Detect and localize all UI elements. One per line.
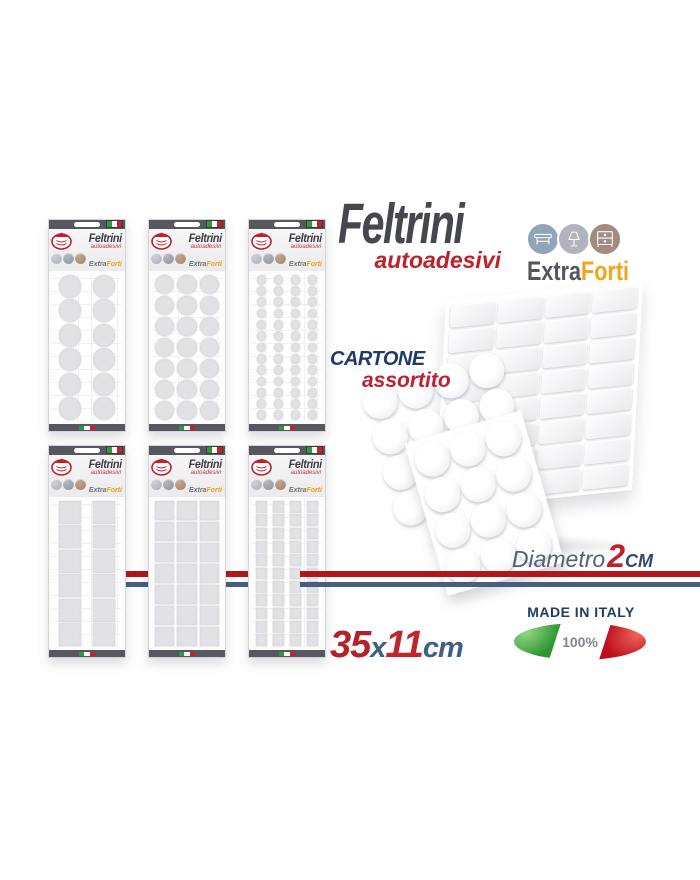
product-title: Feltrini — [338, 196, 463, 253]
square-felt-pad — [496, 321, 542, 348]
square-felt-pad — [541, 367, 587, 394]
brand-logo-badge — [151, 231, 172, 255]
package-subtitle: autoadesivi — [191, 470, 221, 476]
felt-pad — [273, 594, 285, 606]
felt-pad — [274, 275, 284, 285]
felt-pad — [290, 541, 302, 553]
sample-pad — [263, 253, 274, 264]
diameter-label: Diametro 2 CM — [512, 540, 653, 573]
round-felt-pad — [421, 473, 464, 516]
felt-pad — [308, 343, 318, 353]
italy-flag-badge — [307, 221, 322, 227]
square-felt-pad — [585, 412, 631, 439]
felt-pad — [290, 634, 302, 646]
felt-pad — [93, 299, 116, 322]
flag-stripe — [117, 447, 122, 453]
package-title: Feltrini — [289, 231, 322, 245]
felt-pad — [308, 388, 318, 398]
felt-pad — [257, 377, 267, 387]
felt-pad — [274, 343, 284, 353]
sample-pad — [175, 253, 186, 264]
package-header: FeltriniautoadesiviExtraForti — [149, 455, 225, 497]
package-footer-bar — [49, 424, 125, 431]
felt-pad — [273, 608, 285, 620]
felt-pad — [308, 331, 318, 341]
felt-pad — [291, 343, 301, 353]
round-felt-pad — [369, 415, 412, 458]
felt-pad — [93, 397, 116, 420]
felt-pad — [274, 410, 284, 420]
felt-pad — [256, 501, 268, 513]
felt-pad — [256, 554, 268, 566]
felt-pad — [290, 621, 302, 633]
package-footer-bar — [249, 424, 325, 431]
flag-stripe — [90, 426, 95, 430]
sample-pads — [151, 479, 186, 490]
felt-pad — [200, 627, 219, 646]
hang-hole — [174, 448, 200, 453]
square-felt-pad — [538, 417, 584, 444]
felt-pad — [291, 320, 301, 330]
package-header-bar — [149, 446, 225, 455]
felt-pad — [290, 594, 302, 606]
felt-pad — [257, 275, 267, 285]
felt-pad — [257, 343, 267, 353]
square-felt-pad — [589, 337, 635, 364]
package-title: Feltrini — [289, 457, 322, 471]
square-felt-pad — [537, 443, 583, 470]
forti-text: Forti — [206, 487, 222, 494]
square-felt-pad — [542, 342, 588, 369]
felt-pad — [291, 377, 301, 387]
sample-pad — [263, 479, 274, 490]
sample-pad — [51, 253, 62, 264]
brand-logo-badge — [151, 457, 172, 481]
sample-pad — [51, 479, 62, 490]
felt-pad — [155, 522, 174, 541]
felt-pad — [257, 399, 267, 409]
felt-pad — [59, 299, 82, 322]
sample-pads — [251, 479, 286, 490]
felt-pad — [93, 623, 116, 646]
extra-text: Extra — [527, 256, 581, 286]
hang-hole — [74, 448, 100, 453]
felt-pad — [308, 377, 318, 387]
sample-pad — [163, 479, 174, 490]
percent-text: 100% — [562, 634, 598, 650]
felt-pad — [291, 286, 301, 296]
felt-pad — [273, 514, 285, 526]
felt-pad — [59, 373, 82, 396]
flag-stripe — [317, 221, 322, 227]
hang-hole — [74, 222, 100, 227]
sample-pad — [175, 479, 186, 490]
package-extraforti: ExtraForti — [89, 261, 122, 268]
package-footer-bar — [149, 650, 225, 657]
cartone-assortito-label: CARTONE assortito — [330, 348, 451, 393]
square-felt-pad — [545, 291, 591, 318]
felt-pad — [257, 388, 267, 398]
felt-pads-package: FeltriniautoadesiviExtraForti — [48, 219, 126, 432]
felt-pad — [200, 296, 219, 315]
felt-pad — [307, 514, 319, 526]
package-subtitle: autoadesivi — [191, 244, 221, 250]
italy-flag-badge — [179, 426, 195, 430]
felt-pads-package: FeltriniautoadesiviExtraForti — [148, 219, 226, 432]
package-title: Feltrini — [189, 231, 222, 245]
pads-grid — [153, 500, 221, 647]
square-felt-pad — [543, 316, 589, 343]
felt-pad — [155, 401, 174, 420]
round-felt-pad — [411, 438, 454, 481]
felt-pad — [290, 528, 302, 540]
italy-flag-badge — [107, 447, 122, 453]
felt-pad — [93, 501, 116, 524]
stripe-blue-front — [300, 582, 700, 587]
package-extraforti: ExtraForti — [289, 261, 322, 268]
package-header: FeltriniautoadesiviExtraForti — [49, 455, 125, 497]
felt-pads-package: FeltriniautoadesiviExtraForti — [48, 445, 126, 658]
sample-pad — [251, 479, 262, 490]
extra-text: Extra — [289, 261, 307, 268]
felt-pad — [177, 275, 196, 294]
felt-pad — [200, 585, 219, 604]
felt-pad — [256, 528, 268, 540]
sample-pad — [275, 253, 286, 264]
cartone-text: CARTONE — [330, 348, 451, 371]
felt-pad — [274, 365, 284, 375]
felt-pad — [308, 399, 318, 409]
felt-pad — [200, 359, 219, 378]
felt-pad — [59, 574, 82, 597]
felt-pad — [273, 568, 285, 580]
sample-pad — [151, 479, 162, 490]
felt-pad — [177, 543, 196, 562]
italy-flag-badge — [107, 221, 122, 227]
package-header-bar — [249, 220, 325, 229]
hang-hole — [174, 222, 200, 227]
pads-grid — [53, 500, 121, 647]
felt-pad — [200, 501, 219, 520]
square-felt-pad — [450, 301, 496, 328]
felt-pad — [177, 564, 196, 583]
package-footer-bar — [149, 424, 225, 431]
sample-pad — [63, 479, 74, 490]
package-title: Feltrini — [189, 457, 222, 471]
felt-pad — [257, 410, 267, 420]
flag-red — [599, 623, 646, 660]
felt-pad — [273, 541, 285, 553]
package-title: Feltrini — [89, 457, 122, 471]
felt-pad — [177, 501, 196, 520]
package-header-bar — [249, 446, 325, 455]
extra-text: Extra — [289, 487, 307, 494]
brand-logo-badge — [251, 231, 272, 255]
felt-pad — [273, 581, 285, 593]
sample-pads — [51, 253, 86, 264]
italy-flag-badge — [307, 447, 322, 453]
felt-pad — [59, 599, 82, 622]
flag-green — [514, 623, 561, 660]
felt-pad — [177, 380, 196, 399]
felt-pad — [291, 275, 301, 285]
brand-logo-badge — [51, 457, 72, 481]
felt-pad — [274, 388, 284, 398]
sample-pad — [63, 253, 74, 264]
sample-pad — [75, 479, 86, 490]
felt-pad — [177, 627, 196, 646]
felt-pad — [155, 627, 174, 646]
felt-pad — [59, 550, 82, 573]
square-felt-pad — [592, 286, 638, 313]
felt-pad — [155, 564, 174, 583]
felt-pad — [291, 309, 301, 319]
felt-pad — [308, 309, 318, 319]
felt-pad — [177, 401, 196, 420]
package-extraforti: ExtraForti — [189, 487, 222, 494]
flag-white: 100% — [562, 623, 598, 660]
package-subtitle: autoadesivi — [291, 244, 321, 250]
felt-pad — [291, 297, 301, 307]
felt-pad — [308, 297, 318, 307]
felt-pad — [93, 550, 116, 573]
package-extraforti: ExtraForti — [189, 261, 222, 268]
extra-text: Extra — [89, 261, 107, 268]
package-subtitle: autoadesivi — [91, 244, 121, 250]
felt-pad — [308, 275, 318, 285]
square-felt-pad — [591, 311, 637, 338]
round-felt-pad — [482, 417, 525, 460]
package-subtitle: autoadesivi — [291, 470, 321, 476]
felt-pad — [257, 309, 267, 319]
felt-pad — [59, 397, 82, 420]
felt-pad — [291, 388, 301, 398]
package-subtitle: autoadesivi — [91, 470, 121, 476]
category-icons — [529, 222, 622, 256]
headline: Feltrini autoadesivi — [338, 196, 512, 274]
felt-pad — [290, 501, 302, 513]
package-extraforti: ExtraForti — [89, 487, 122, 494]
italy-flag-badge — [179, 652, 195, 656]
felt-pad — [200, 317, 219, 336]
felt-pad — [93, 599, 116, 622]
italy-flag-ellipse: 100% — [514, 623, 646, 660]
brand-logo-badge — [51, 231, 72, 255]
sample-pad — [151, 253, 162, 264]
felt-pad — [273, 501, 285, 513]
felt-pad — [291, 410, 301, 420]
felt-pad — [257, 286, 267, 296]
felt-pad — [200, 543, 219, 562]
package-header: FeltriniautoadesiviExtraForti — [249, 229, 325, 271]
felt-pad — [155, 380, 174, 399]
felt-pad — [274, 354, 284, 364]
felt-pad — [93, 525, 116, 548]
felt-pad — [307, 621, 319, 633]
flag-stripe — [117, 221, 122, 227]
assortito-text: assortito — [362, 369, 451, 393]
square-felt-pad — [587, 387, 633, 414]
felt-pad — [200, 275, 219, 294]
forti-text: Forti — [581, 256, 629, 286]
felt-pad — [93, 348, 116, 371]
felt-pad — [256, 621, 268, 633]
pads-grid — [253, 274, 321, 421]
flag-stripe — [290, 652, 295, 656]
square-felt-pad — [448, 326, 494, 353]
felt-pad — [177, 606, 196, 625]
made-in-italy-block: MADE IN ITALY 100% — [514, 604, 648, 660]
flag-stripe — [90, 652, 95, 656]
felt-pad — [256, 608, 268, 620]
flag-stripe — [190, 652, 195, 656]
felt-pad — [291, 331, 301, 341]
package-header: FeltriniautoadesiviExtraForti — [249, 455, 325, 497]
dimension-width: 35 — [330, 626, 370, 664]
table-icon — [526, 222, 560, 256]
felt-pad — [274, 399, 284, 409]
felt-pad — [155, 317, 174, 336]
italy-flag-badge — [279, 652, 295, 656]
package-header-bar — [49, 220, 125, 229]
felt-pad — [256, 541, 268, 553]
round-felt-pad — [441, 544, 484, 587]
felt-pad — [274, 286, 284, 296]
felt-pad — [155, 543, 174, 562]
felt-pad — [307, 608, 319, 620]
felt-pad — [307, 541, 319, 553]
italy-flag-badge — [207, 221, 222, 227]
felt-pad — [155, 275, 174, 294]
square-felt-pad — [588, 362, 634, 389]
package-footer-bar — [249, 650, 325, 657]
flag-stripe — [290, 426, 295, 430]
round-felt-pad — [492, 453, 535, 496]
felt-pad — [257, 365, 267, 375]
felt-pad — [308, 320, 318, 330]
felt-pad — [256, 634, 268, 646]
felt-pad — [200, 606, 219, 625]
felt-pad — [290, 608, 302, 620]
felt-pad — [177, 317, 196, 336]
pads-grid — [53, 274, 121, 421]
felt-pad — [155, 296, 174, 315]
felt-pad — [177, 585, 196, 604]
flag-stripe — [317, 447, 322, 453]
diameter-value: 2 — [607, 540, 625, 572]
felt-pad — [200, 401, 219, 420]
dimension-times: x — [370, 634, 385, 663]
package-footer-bar — [49, 650, 125, 657]
felt-pad — [291, 399, 301, 409]
felt-pad — [257, 354, 267, 364]
sample-pad — [163, 253, 174, 264]
felt-pad — [257, 331, 267, 341]
square-felt-pad — [583, 463, 629, 490]
packages-row-bottom: FeltriniautoadesiviExtraFortiFeltriniaut… — [48, 445, 326, 658]
felt-pad — [177, 359, 196, 378]
brand-logo-badge — [251, 457, 272, 481]
felt-pad — [256, 568, 268, 580]
felt-pad — [177, 338, 196, 357]
felt-pad — [256, 514, 268, 526]
felt-pad — [273, 528, 285, 540]
forti-text: Forti — [106, 261, 122, 268]
square-felt-pad — [539, 392, 585, 419]
diameter-unit: CM — [625, 551, 653, 572]
package-header: FeltriniautoadesiviExtraForti — [49, 229, 125, 271]
felt-pad — [273, 621, 285, 633]
felt-pad — [307, 554, 319, 566]
italy-flag-badge — [79, 652, 95, 656]
felt-pad — [59, 275, 82, 298]
felt-pad — [307, 501, 319, 513]
felt-pad — [274, 377, 284, 387]
felt-pad — [93, 275, 116, 298]
felt-pad — [273, 554, 285, 566]
felt-pad — [256, 594, 268, 606]
packages-row-top: FeltriniautoadesiviExtraFortiFeltriniaut… — [48, 219, 326, 432]
felt-pad — [155, 585, 174, 604]
felt-pad — [273, 634, 285, 646]
felt-pad — [177, 296, 196, 315]
package-header-bar — [149, 220, 225, 229]
flag-stripe — [190, 426, 195, 430]
felt-pad — [307, 594, 319, 606]
felt-pad — [200, 564, 219, 583]
felt-pad — [93, 324, 116, 347]
hang-hole — [274, 222, 300, 227]
sample-pad — [251, 253, 262, 264]
felt-pad — [274, 309, 284, 319]
felt-pad — [155, 338, 174, 357]
italy-flag-badge — [207, 447, 222, 453]
dimension-height: 11 — [385, 626, 422, 664]
round-felt-pad — [467, 498, 510, 541]
card-dimensions-label: 35 x 11 cm — [330, 626, 463, 664]
square-felt-pad — [584, 438, 630, 465]
felt-pad — [291, 354, 301, 364]
lamp-icon — [557, 222, 591, 256]
felt-pad — [155, 359, 174, 378]
sample-pads — [251, 253, 286, 264]
felt-pad — [59, 348, 82, 371]
felt-pad — [291, 365, 301, 375]
extra-text: Extra — [189, 261, 207, 268]
round-felt-pad — [431, 509, 474, 552]
felt-pad — [274, 331, 284, 341]
flag-stripe — [217, 221, 222, 227]
extraforti-label: ExtraForti — [527, 256, 629, 287]
forti-text: Forti — [206, 261, 222, 268]
felt-pads-package: FeltriniautoadesiviExtraForti — [248, 219, 326, 432]
product-image: FeltriniautoadesiviExtraFortiFeltriniaut… — [0, 0, 700, 880]
felt-pad — [155, 606, 174, 625]
felt-pads-package: FeltriniautoadesiviExtraForti — [148, 445, 226, 658]
sample-pad — [75, 253, 86, 264]
felt-pad — [308, 410, 318, 420]
italy-flag-badge — [279, 426, 295, 430]
felt-pad — [200, 522, 219, 541]
felt-pad — [200, 380, 219, 399]
round-felt-pad — [446, 427, 489, 470]
sample-pads — [151, 253, 186, 264]
round-felt-pad — [502, 488, 545, 531]
felt-pad — [200, 338, 219, 357]
made-in-italy-text: MADE IN ITALY — [514, 604, 648, 620]
extra-text: Extra — [189, 487, 207, 494]
felt-pad — [308, 354, 318, 364]
